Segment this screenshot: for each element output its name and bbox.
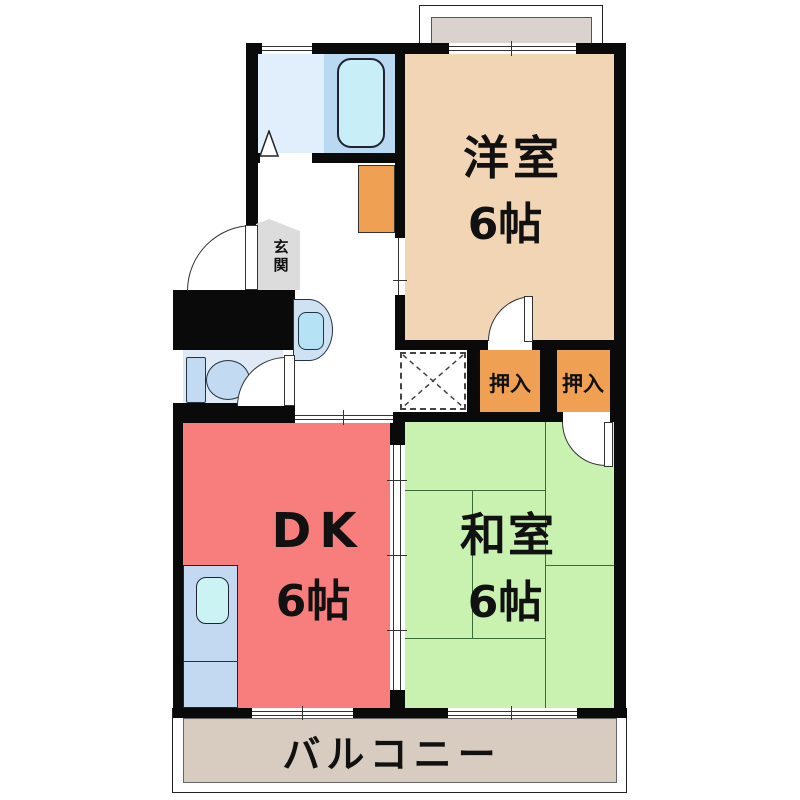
slider-tick [393,280,407,281]
slider-tick [343,410,344,425]
window-tick [302,706,303,720]
kitchen-divider [183,661,238,662]
kitchen-sink [196,577,229,624]
closet1-label: 押入 [489,368,531,398]
dk-japanese-sliding-partition [390,445,405,690]
wall [390,690,405,718]
dk-size: 6帖 [276,565,351,629]
wall [610,350,618,412]
toilet-tank [186,357,206,403]
slider-tick [387,555,407,556]
storage-x-mark [402,354,464,408]
tatami-line [405,490,545,491]
entrance-door-panel [245,225,258,290]
wall [173,403,283,423]
western-room-window [449,43,576,54]
dk-balcony-window [252,708,353,718]
dk-entry-sliding-door [295,412,393,423]
wall [173,403,183,718]
wall [246,43,258,225]
floor-plan: 洋室 6帖 DK 6帖 和室 6帖 押入 押入 玄関 バルコニー [0,0,800,800]
shoe-cabinet [358,165,395,233]
toilet-door-panel [284,355,295,406]
bathtub [337,58,385,148]
washroom-window [262,43,312,54]
wall [395,43,405,350]
slider-tick [387,630,407,631]
wall [540,350,557,412]
japanese-room-door-opening [563,412,610,422]
storage-box [400,352,466,410]
japanese-room-balcony-window [448,708,577,718]
window-tick [511,706,512,720]
western-room-size: 6帖 [468,188,543,252]
window-tick [511,41,512,56]
tatami-line [405,638,545,639]
wall [173,290,295,350]
western-room-door-panel [524,296,533,342]
western-room-sliding-door [395,238,405,295]
upper-alcove [431,17,592,44]
tatami-line [545,422,546,708]
japanese-room-label: 和室 [460,499,556,565]
entrance-label: 玄関 [273,238,290,274]
washbasin-bowl [298,312,324,350]
tatami-line [545,565,614,566]
closet2-label: 押入 [562,368,604,398]
folding-door-icon [258,130,280,158]
japanese-room-door-panel [604,422,613,467]
western-room-label: 洋室 [463,122,563,188]
dk-label: DK [271,503,364,559]
wall [467,350,480,412]
balcony-label: バルコニー [282,724,501,779]
japanese-room-size: 6帖 [468,566,543,630]
entrance-door-arc [187,225,253,291]
slider-tick [387,480,407,481]
